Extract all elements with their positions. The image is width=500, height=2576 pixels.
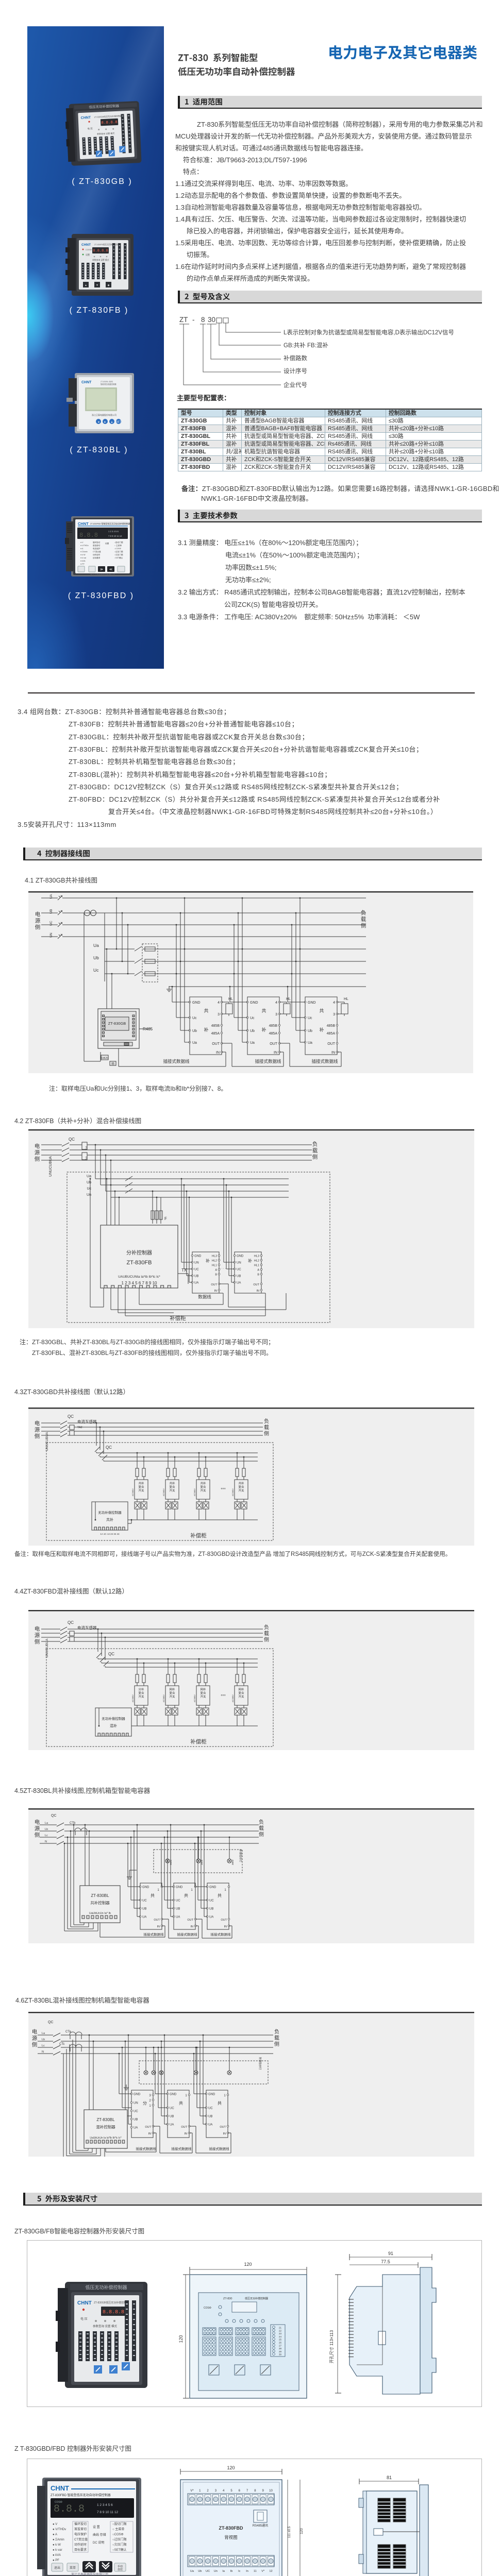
svg-text:28: 28	[279, 2347, 282, 2350]
svg-text:低压无功补偿控制器: 低压无功补偿控制器	[85, 2284, 127, 2290]
svg-text:GND: GND	[192, 1001, 201, 1005]
svg-text:▲: ▲	[85, 284, 87, 287]
svg-text:Ua: Ua	[190, 2570, 194, 2573]
svg-text:CTb: CTb	[70, 1822, 76, 1825]
svg-text:10: 10	[269, 2489, 273, 2493]
svg-text:复合: 复合	[169, 1485, 175, 1489]
svg-text:OUT: OUT	[221, 1919, 227, 1922]
svg-text:负: 负	[361, 909, 366, 916]
svg-text:UC: UC	[49, 921, 53, 926]
svg-text:● V: ● V	[80, 541, 84, 544]
svg-text:电: 电	[35, 1143, 40, 1149]
svg-text:电: 电	[35, 1625, 40, 1632]
svg-text:共: 共	[261, 1008, 266, 1013]
svg-text:电: 电	[35, 1420, 40, 1427]
svg-text:IN: IN	[185, 2132, 188, 2136]
svg-text:载: 载	[274, 2035, 279, 2041]
svg-text:数据线: 数据线	[198, 1294, 211, 1299]
svg-text:AC380V: AC380V	[162, 1694, 165, 1702]
svg-text:IN: IN	[257, 1290, 260, 1293]
svg-text:11: 11	[254, 2570, 257, 2573]
svg-text:QC: QC	[68, 1414, 74, 1419]
svg-text:● V: ● V	[53, 2523, 57, 2526]
svg-text:AC380V: AC380V	[131, 1488, 134, 1496]
svg-text:插接式数据线: 插接式数据线	[209, 2146, 230, 2151]
svg-text:● PF: ● PF	[80, 563, 85, 565]
svg-text:Ub: Ub	[198, 2570, 202, 2573]
svg-text:La: La	[45, 1822, 48, 1825]
svg-text:插接式数据线: 插接式数据线	[211, 1932, 231, 1937]
svg-text:● A: ● A	[80, 548, 84, 550]
svg-text:GND: GND	[142, 1886, 149, 1889]
svg-text:IB: IB	[111, 1063, 114, 1066]
svg-text:GND: GND	[308, 1001, 316, 1005]
svg-text:○过压门限: ○过压门限	[114, 550, 123, 553]
svg-text:● k·var: ● k·var	[53, 2549, 62, 2552]
svg-text:29: 29	[279, 2350, 282, 2353]
svg-text:IN: IN	[148, 2132, 152, 2136]
svg-text:Lb: Lb	[42, 2038, 45, 2041]
svg-text:COSΦ: COSΦ	[86, 248, 92, 251]
svg-text:RS485通讯: RS485通讯	[253, 2523, 268, 2528]
svg-text:B: B	[215, 1274, 217, 1277]
svg-text:电流互感器: 电流互感器	[77, 1625, 97, 1630]
svg-text:分补: 分补	[138, 1687, 144, 1691]
svg-text:电: 电	[35, 1819, 40, 1825]
svg-text:120: 120	[300, 2528, 304, 2534]
svg-text:QC: QC	[69, 1137, 75, 1142]
svg-text:侧: 侧	[274, 2041, 279, 2047]
svg-text:补: 补	[319, 1027, 324, 1032]
svg-text:网补: 网补	[169, 1687, 175, 1691]
svg-text:F: F	[164, 1216, 167, 1221]
svg-text:无功补偿控制器: 无功补偿控制器	[98, 1510, 122, 1515]
svg-text:485A: 485A	[327, 1032, 336, 1036]
svg-text:OUT: OUT	[145, 2126, 151, 2129]
svg-text:源: 源	[35, 1825, 40, 1832]
svg-text:○ 主菜单: ○ 主菜单	[112, 2527, 124, 2531]
svg-text:SET: SET	[116, 421, 121, 424]
svg-text:CT变比值: CT变比值	[74, 2537, 88, 2541]
svg-text:OUT: OUT	[220, 2126, 226, 2129]
svg-text:共补: 共补	[238, 1481, 244, 1485]
svg-text:侧: 侧	[264, 1636, 269, 1643]
svg-text:侧: 侧	[35, 924, 41, 930]
svg-text:UA: UA	[208, 2124, 212, 2127]
svg-text:Ub: Ub	[87, 1181, 91, 1184]
svg-text:TA1: TA1	[85, 1146, 88, 1150]
svg-text:Ua: Ua	[93, 943, 99, 948]
svg-text:21: 21	[279, 2327, 282, 2329]
svg-text:设 置: 设 置	[93, 2525, 100, 2529]
svg-text:UB: UB	[176, 1908, 180, 1911]
svg-text:侧: 侧	[32, 2041, 38, 2048]
svg-text:● PF: ● PF	[53, 2559, 59, 2562]
svg-text:UaUbUcUn Ia Ia*Ib Ib*Ic Ic*: UaUbUcUn Ia Ia*Ib Ib*Ic Ic*	[90, 2137, 121, 2140]
svg-text:7 8 9 10 11 12: 7 8 9 10 11 12	[108, 535, 122, 537]
svg-text:Uc: Uc	[250, 1016, 255, 1020]
svg-text:UN: UN	[49, 933, 53, 938]
svg-text:开关: 开关	[200, 1488, 206, 1493]
svg-text:插接式数据线: 插接式数据线	[144, 1932, 164, 1937]
svg-text:HL3: HL3	[254, 1255, 259, 1258]
svg-text:IN: IN	[331, 1051, 335, 1055]
svg-text:La: La	[42, 2032, 45, 2035]
svg-text:● V/THDv: ● V/THDv	[80, 545, 89, 547]
svg-text:Lb: Lb	[45, 1828, 48, 1831]
svg-text:3: 3	[333, 1013, 335, 1016]
svg-text:8.8.8.8: 8.8.8.8	[101, 121, 118, 125]
svg-text:插接式数据线: 插接式数据线	[163, 1059, 190, 1064]
svg-text:8.8.8.8: 8.8.8.8	[103, 2310, 124, 2315]
svg-text:侧: 侧	[35, 1433, 40, 1439]
svg-text:UA: UA	[209, 1916, 213, 1919]
svg-text:Ua: Ua	[87, 1175, 91, 1178]
svg-text:插接式数据线: 插接式数据线	[177, 1932, 198, 1937]
svg-text:Uc: Uc	[308, 1016, 312, 1020]
svg-text:○ 主菜单: ○ 主菜单	[114, 544, 122, 547]
svg-text:补偿柜: 补偿柜	[190, 1738, 207, 1745]
svg-text:UA: UA	[170, 2124, 174, 2127]
svg-text:UC: UC	[134, 2110, 138, 2113]
svg-text:ZT-830FBD 智能型低压无功自动补偿控制器: ZT-830FBD 智能型低压无功自动补偿控制器	[51, 2493, 111, 2497]
svg-text:UA: UA	[237, 1282, 241, 1285]
svg-text:共补: 共补	[200, 1481, 206, 1485]
svg-text:HL: HL	[228, 997, 233, 1001]
svg-text:UB: UB	[194, 1275, 198, 1278]
svg-text:退出: 退出	[54, 2566, 60, 2570]
svg-text:设计序号: 设计序号	[284, 367, 307, 375]
svg-text:CHNT: CHNT	[51, 2484, 69, 2492]
svg-text:485B: 485B	[211, 1024, 220, 1028]
svg-text:负: 负	[274, 2028, 279, 2035]
svg-text:共: 共	[151, 1893, 155, 1898]
svg-text:共: 共	[319, 1008, 324, 1013]
svg-text:自控: 自控	[118, 2568, 123, 2571]
svg-text:首投首切: 首投首切	[74, 2527, 87, 2531]
svg-text:Ub: Ub	[308, 1029, 312, 1033]
svg-text:GND: GND	[208, 2093, 215, 2096]
svg-text:485A: 485A	[211, 1032, 220, 1036]
svg-text:ZT-830FB: ZT-830FB	[127, 1260, 152, 1266]
svg-text:分: 分	[143, 2101, 147, 2106]
svg-text:插接式数据线: 插接式数据线	[136, 2146, 157, 2151]
svg-text:OUT: OUT	[154, 1919, 160, 1922]
svg-text:QC: QC	[108, 1652, 114, 1656]
svg-text:QC: QC	[48, 2021, 54, 2024]
svg-text:◄: ◄	[97, 421, 100, 424]
svg-text:7 8 9 10 11 12: 7 8 9 10 11 12	[97, 2511, 118, 2514]
svg-text:共: 共	[204, 1008, 208, 1013]
svg-text:源: 源	[35, 1427, 40, 1433]
svg-text:30: 30	[279, 2353, 282, 2356]
svg-text:OUT: OUT	[187, 1919, 193, 1922]
svg-text:设置: 设置	[105, 542, 109, 545]
svg-text:○投切门限: ○投切门限	[112, 2522, 127, 2526]
svg-text:开关: 开关	[200, 1694, 206, 1699]
svg-text:120: 120	[178, 2335, 184, 2343]
svg-text:网补: 网补	[200, 1687, 206, 1691]
svg-text:AC380V: AC380V	[231, 1694, 234, 1702]
svg-text:UC: UC	[194, 1268, 199, 1272]
svg-text:○过压门限: ○过压门限	[112, 2537, 127, 2541]
svg-text:3: 3	[218, 1013, 220, 1016]
svg-text:GND: GND	[176, 1886, 183, 1889]
svg-text:电: 电	[32, 2028, 38, 2035]
svg-text:Ub: Ub	[192, 1029, 197, 1033]
svg-text:CHNT: CHNT	[81, 116, 91, 120]
svg-text:27: 27	[279, 2344, 282, 2347]
svg-text:26: 26	[279, 2342, 282, 2344]
svg-text:参数查询 设置 模式: 参数查询 设置 模式	[92, 259, 109, 261]
svg-text:源: 源	[35, 1149, 40, 1156]
svg-text:N: N	[42, 2050, 44, 2054]
svg-text:DC 说明: DC 说明	[93, 2540, 104, 2545]
svg-text:CHNT: CHNT	[81, 243, 91, 247]
svg-text:UC: UC	[206, 2570, 210, 2573]
svg-text:负: 负	[264, 1624, 269, 1631]
svg-text:V*: V*	[261, 2570, 265, 2573]
svg-text:● k·var: ● k·var	[80, 557, 87, 559]
svg-text:OUT: OUT	[211, 1283, 217, 1286]
svg-text:Ua: Ua	[250, 1041, 255, 1045]
svg-text:485B: 485B	[269, 1024, 278, 1028]
svg-text:L表示控制对象为抗谐型或简易型智能电容,D表示输出DC12V: L表示控制对象为抗谐型或简易型智能电容,D表示输出DC12V信号	[284, 329, 454, 336]
svg-text:24: 24	[279, 2335, 282, 2338]
svg-text:源: 源	[32, 2035, 38, 2042]
svg-text:无功补偿控制器: 无功补偿控制器	[102, 1716, 125, 1721]
svg-text:插接式数据线: 插接式数据线	[311, 1059, 338, 1064]
svg-text:补偿柜: 补偿柜	[190, 1532, 207, 1539]
svg-text:◆: ◆	[108, 284, 110, 287]
svg-text:UB: UB	[49, 909, 53, 913]
svg-text:载: 载	[264, 1425, 269, 1431]
svg-text:Uc: Uc	[87, 1187, 91, 1191]
svg-text:IN: IN	[191, 1925, 194, 1928]
svg-text:补: 补	[206, 1258, 210, 1263]
svg-text:IN: IN	[223, 2132, 226, 2136]
svg-text:开关: 开关	[138, 1488, 144, 1493]
svg-text:插接式数据线: 插接式数据线	[255, 1059, 281, 1064]
svg-text:Uc: Uc	[93, 968, 99, 973]
svg-text:UC: UC	[237, 1268, 241, 1272]
svg-text:● k·W: ● k·W	[53, 2544, 61, 2547]
svg-text:● kVA: ● kVA	[53, 2554, 61, 2557]
svg-text:120: 120	[227, 2465, 235, 2470]
svg-text:UNUCUBUA: UNUCUBUA	[45, 1432, 49, 1451]
svg-text:载: 载	[264, 1631, 269, 1637]
svg-text:复合: 复合	[169, 1691, 175, 1695]
svg-text:补偿路数: 补偿路数	[284, 354, 307, 362]
svg-text:补: 补	[204, 1027, 208, 1032]
svg-text:手动: 手动	[118, 2565, 123, 2568]
svg-text:○SET确认: ○SET确认	[112, 2548, 126, 2552]
svg-text:○COSΦ: ○COSΦ	[114, 548, 121, 550]
svg-text:CHNT: CHNT	[77, 2300, 92, 2306]
svg-text:AC380V: AC380V	[193, 1694, 196, 1702]
svg-text:背视图: 背视图	[224, 2535, 238, 2540]
svg-text:IN: IN	[216, 1051, 220, 1055]
svg-text:IN: IN	[224, 1925, 227, 1928]
svg-text:电 压: 电 压	[80, 2317, 88, 2321]
svg-text:浙江正泰电器股份有限公司: 浙江正泰电器股份有限公司	[92, 413, 116, 416]
svg-text:共: 共	[218, 1893, 222, 1898]
svg-text:开关: 开关	[138, 1694, 144, 1699]
svg-text:低压无功补偿控制器: 低压无功补偿控制器	[245, 2297, 268, 2300]
svg-text:浙江正泰电器股份有限公司: 浙江正泰电器股份有限公司	[71, 2572, 108, 2576]
svg-text:AC380V: AC380V	[162, 1488, 165, 1496]
svg-text:ZT-830GB低压无功补偿控制器: ZT-830GB低压无功补偿控制器	[94, 2301, 129, 2304]
svg-text:ZT-830FBD: ZT-830FBD	[219, 2526, 243, 2531]
svg-text:补: 补	[248, 1258, 252, 1263]
svg-text:UB: UB	[209, 1908, 213, 1911]
svg-text:HL1: HL1	[254, 1264, 259, 1267]
svg-text:°°°: °°°	[221, 1694, 226, 1699]
svg-text:复合: 复合	[200, 1485, 206, 1489]
svg-text:● A: ● A	[53, 2533, 57, 2536]
svg-text:ZT-830FB低压无功补偿控制器: ZT-830FB低压无功补偿控制器	[94, 243, 121, 246]
svg-text:1 2 3 4 5 6: 1 2 3 4 5 6	[108, 530, 119, 533]
svg-text:GND: GND	[209, 1886, 216, 1889]
svg-text:►: ►	[104, 421, 107, 424]
svg-text:电流互感器: 电流互感器	[77, 1419, 97, 1424]
svg-text:开关: 开关	[169, 1488, 175, 1493]
svg-text:负: 负	[312, 1141, 318, 1147]
svg-text:8.8.8: 8.8.8	[54, 2503, 85, 2515]
svg-text:负: 负	[259, 1819, 264, 1825]
svg-text:UC: UC	[170, 2107, 174, 2110]
svg-text:动作延时: 动作延时	[93, 553, 101, 556]
svg-text:Ib: Ib	[230, 2570, 233, 2573]
svg-text:外接指示灯: 外接指示灯	[258, 2057, 262, 2070]
svg-text:▲: ▲	[111, 421, 113, 424]
svg-text:曲线 存储: 曲线 存储	[93, 2533, 106, 2537]
svg-text:● ΣAmin: ● ΣAmin	[80, 551, 88, 553]
svg-text:COSΦ: COSΦ	[55, 2501, 62, 2504]
svg-text:企业代号: 企业代号	[284, 381, 307, 388]
svg-text:插接式数据线: 插接式数据线	[172, 2146, 192, 2151]
svg-text:侧: 侧	[361, 922, 366, 929]
svg-text:UB: UB	[237, 1275, 241, 1278]
svg-text:111 ±0.5: 111 ±0.5	[288, 2526, 291, 2538]
svg-text:HL2: HL2	[212, 1260, 217, 1263]
svg-text:菜单: 菜单	[70, 2566, 76, 2570]
svg-text:77.5: 77.5	[381, 2259, 390, 2264]
svg-text:TA2: TA2	[77, 1426, 82, 1429]
svg-text:Lc: Lc	[42, 2044, 45, 2047]
svg-text:UAUBUCUNIa Ia*Ib Ib*Ic Ic*: UAUBUCUNIa Ia*Ib Ib*Ic Ic*	[118, 1275, 160, 1279]
svg-text:HL: HL	[286, 997, 291, 1001]
svg-text:共: 共	[179, 2101, 183, 2106]
svg-text:· · ·: · · ·	[221, 1267, 226, 1270]
svg-text:设置: 设置	[86, 253, 90, 256]
svg-text:HL1: HL1	[212, 1264, 217, 1267]
svg-text:°°°: °°°	[221, 1487, 226, 1492]
svg-text:CT变比值: CT变比值	[93, 550, 101, 553]
svg-text:Un: Un	[214, 2570, 218, 2573]
svg-text:复合: 复合	[238, 1485, 244, 1489]
svg-text:485B: 485B	[327, 1024, 336, 1028]
svg-text:○SET确认: ○SET确认	[114, 556, 123, 559]
svg-text:源: 源	[35, 918, 41, 924]
svg-text:ZT: ZT	[179, 316, 188, 324]
svg-text:○投切门限: ○投切门限	[114, 541, 123, 544]
svg-text:共补: 共补	[169, 1481, 175, 1485]
svg-text:● k·W: ● k·W	[80, 554, 86, 556]
svg-text:侧: 侧	[35, 1156, 40, 1162]
svg-text:UaUbUcUn Ia* Ib: UaUbUcUn Ia* Ib	[89, 1912, 111, 1915]
svg-text:目标要求: 目标要求	[93, 556, 101, 559]
svg-text:开关: 开关	[238, 1488, 244, 1493]
svg-text:OUT: OUT	[327, 1042, 336, 1046]
svg-text:UC: UC	[176, 1900, 180, 1903]
svg-text:ZT-830BL: ZT-830BL	[96, 2117, 115, 2122]
svg-text:共: 共	[184, 1893, 188, 1898]
svg-text:电: 电	[35, 911, 41, 918]
svg-text:UA: UA	[134, 2127, 138, 2130]
svg-text:UA: UA	[49, 894, 53, 899]
svg-text:IN: IN	[214, 1290, 218, 1293]
svg-text:网补: 网补	[238, 1687, 244, 1691]
svg-text:复合: 复合	[138, 1485, 144, 1489]
svg-text:HL: HL	[344, 997, 348, 1001]
svg-text:UB: UB	[208, 2115, 212, 2119]
svg-text:共: 共	[218, 2101, 222, 2106]
svg-text:首投首切: 首投首切	[93, 544, 101, 547]
svg-text:91: 91	[388, 2251, 393, 2256]
svg-text:混补控制器: 混补控制器	[96, 2124, 115, 2129]
svg-text:8.8.8: 8.8.8	[79, 532, 98, 539]
svg-text:QC: QC	[51, 1814, 57, 1818]
svg-text:UB: UB	[134, 2119, 138, 2122]
svg-text:22: 22	[279, 2329, 282, 2332]
svg-text:UB: UB	[170, 2115, 174, 2119]
svg-text:8.8.8.8: 8.8.8.8	[93, 249, 108, 253]
svg-text:≫: ≫	[100, 568, 103, 571]
svg-text:4: 4	[333, 1001, 335, 1005]
svg-text:V*: V*	[190, 2489, 194, 2493]
svg-text:CHNT: CHNT	[81, 381, 92, 384]
svg-text:○COSΦ: ○COSΦ	[112, 2533, 124, 2536]
svg-text:4: 4	[275, 1001, 277, 1005]
svg-text:3: 3	[275, 1013, 277, 1016]
svg-text:● kVA: ● kVA	[80, 560, 86, 562]
svg-text:COSΦ: COSΦ	[204, 2307, 211, 2310]
svg-text:侧: 侧	[259, 1831, 264, 1838]
svg-text:载: 载	[312, 1148, 318, 1154]
svg-text:QC: QC	[106, 1445, 112, 1450]
svg-text:CTc: CTc	[59, 2043, 64, 2046]
svg-text:UA: UA	[142, 1916, 146, 1919]
svg-text:循环投切: 循环投切	[74, 2522, 87, 2526]
svg-text:IN: IN	[157, 1925, 160, 1928]
svg-text:81: 81	[387, 2475, 392, 2480]
svg-text:载: 载	[259, 1825, 264, 1832]
svg-text:4: 4	[218, 1001, 220, 1005]
svg-text:GND: GND	[170, 2093, 177, 2096]
svg-text:○欠压门限: ○欠压门限	[114, 553, 123, 556]
svg-text:共补: 共补	[138, 1481, 144, 1485]
svg-text:8: 8	[201, 316, 205, 324]
svg-text:1A 1C 14 24 34 44: 1A 1C 14 24 34 44	[100, 1533, 120, 1535]
svg-text:外接指示灯: 外接指示灯	[239, 1849, 242, 1862]
svg-text:GND: GND	[194, 1255, 202, 1258]
svg-text:● V/THDv: ● V/THDv	[53, 2528, 66, 2531]
svg-text:TA2: TA2	[85, 1156, 88, 1160]
svg-text:UC: UC	[142, 1900, 147, 1903]
svg-text:电压保护: 电压保护	[93, 547, 101, 550]
svg-text:380V: 380V	[231, 1859, 234, 1865]
